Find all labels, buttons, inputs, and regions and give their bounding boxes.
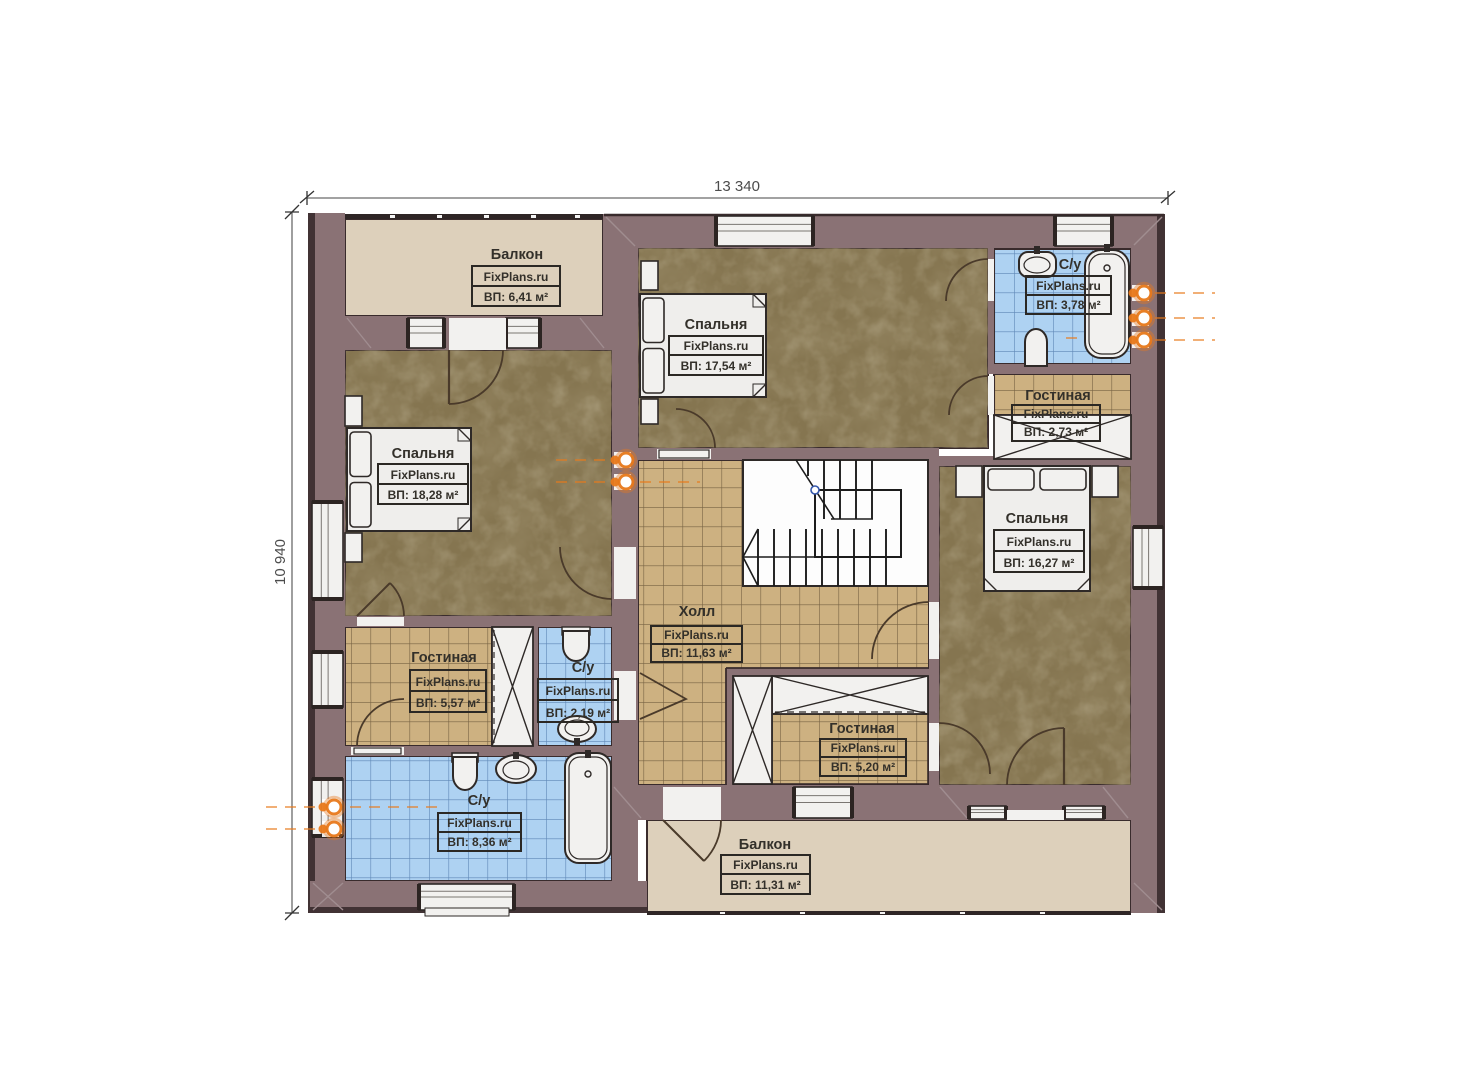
svg-text:FixPlans.ru: FixPlans.ru	[684, 339, 749, 353]
svg-text:FixPlans.ru: FixPlans.ru	[416, 675, 481, 689]
svg-text:10 940: 10 940	[272, 539, 289, 585]
svg-text:ВП: 6,41 м²: ВП: 6,41 м²	[484, 290, 548, 304]
svg-text:Холл: Холл	[679, 604, 715, 620]
svg-text:Балкон: Балкон	[739, 837, 791, 853]
svg-text:FixPlans.ru: FixPlans.ru	[1024, 407, 1089, 421]
svg-text:ВП: 17,54 м²: ВП: 17,54 м²	[681, 359, 752, 373]
svg-text:FixPlans.ru: FixPlans.ru	[484, 270, 549, 284]
svg-text:FixPlans.ru: FixPlans.ru	[733, 858, 798, 872]
svg-text:FixPlans.ru: FixPlans.ru	[1007, 535, 1072, 549]
svg-text:Спальня: Спальня	[392, 446, 455, 462]
svg-text:ВП: 18,28 м²: ВП: 18,28 м²	[388, 488, 459, 502]
svg-text:Гостиная: Гостиная	[1025, 388, 1091, 404]
svg-text:FixPlans.ru: FixPlans.ru	[831, 741, 896, 755]
svg-text:Спальня: Спальня	[1006, 511, 1069, 527]
svg-text:13 340: 13 340	[714, 178, 760, 195]
svg-text:С/у: С/у	[1059, 257, 1082, 273]
svg-text:С/у: С/у	[572, 660, 595, 676]
svg-text:Гостиная: Гостиная	[411, 650, 477, 666]
svg-text:FixPlans.ru: FixPlans.ru	[664, 628, 729, 642]
svg-text:FixPlans.ru: FixPlans.ru	[447, 816, 512, 830]
svg-text:FixPlans.ru: FixPlans.ru	[1036, 279, 1101, 293]
svg-text:ВП: 16,27 м²: ВП: 16,27 м²	[1004, 556, 1075, 570]
svg-text:С/у: С/у	[468, 793, 491, 809]
svg-text:ВП: 2,73 м²: ВП: 2,73 м²	[1024, 425, 1088, 439]
svg-text:ВП: 5,57 м²: ВП: 5,57 м²	[416, 696, 480, 710]
svg-text:Гостиная: Гостиная	[829, 721, 895, 737]
svg-text:Спальня: Спальня	[685, 317, 748, 333]
svg-text:ВП: 8,36 м²: ВП: 8,36 м²	[447, 835, 511, 849]
svg-text:ВП: 5,20 м²: ВП: 5,20 м²	[831, 760, 895, 774]
svg-text:Балкон: Балкон	[491, 247, 543, 263]
svg-text:ВП: 11,31 м²: ВП: 11,31 м²	[730, 878, 800, 892]
svg-text:ВП: 3,78 м²: ВП: 3,78 м²	[1036, 298, 1100, 312]
svg-text:FixPlans.ru: FixPlans.ru	[391, 468, 456, 482]
svg-text:ВП: 11,63 м²: ВП: 11,63 м²	[661, 646, 731, 660]
svg-text:FixPlans.ru: FixPlans.ru	[546, 684, 611, 698]
svg-text:ВП: 2,19 м²: ВП: 2,19 м²	[546, 706, 610, 720]
